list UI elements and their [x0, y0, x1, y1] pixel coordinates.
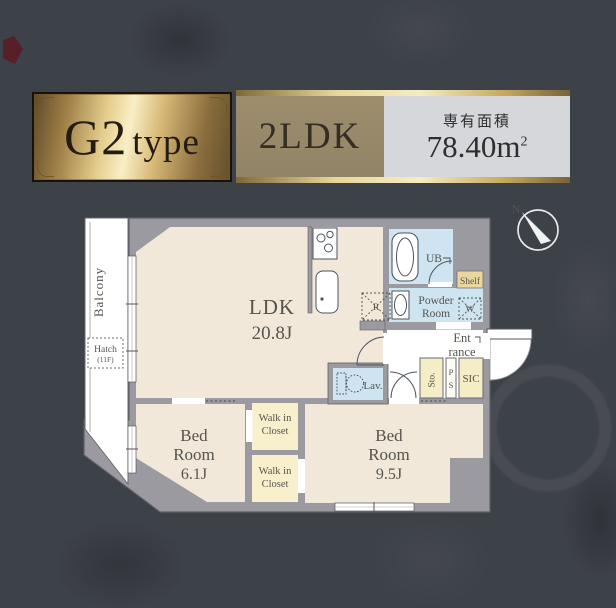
ps-letter-s: S	[449, 380, 454, 390]
compass: N	[512, 202, 558, 250]
bedroom1-name-line2: Room	[173, 445, 215, 464]
entrance-label-line1: Ent	[453, 331, 471, 345]
pipe-space	[446, 358, 456, 398]
powder-door-gap	[436, 322, 471, 330]
ub-label: UB	[426, 253, 442, 265]
ub-door-gap	[428, 282, 452, 287]
ps-letter-p: P	[449, 367, 454, 377]
balcony-label: Balcony	[91, 267, 106, 317]
wic1-label-line2: Closet	[262, 426, 289, 437]
entrance-door-swing	[490, 339, 531, 380]
storage-label: Sto.	[428, 372, 438, 387]
hatch-label: Hatch	[94, 345, 117, 355]
compass-north-label: N	[512, 202, 521, 216]
wic2-door-gap	[298, 459, 305, 493]
wic2-label-line2: Closet	[262, 479, 289, 490]
floor-plan: Balcony Hatch (11F)	[0, 0, 616, 608]
hatch-floor-label: (11F)	[97, 355, 114, 364]
lavatory-label: Lav.	[363, 380, 382, 392]
bedroom1-size: 6.1J	[181, 466, 207, 483]
bedroom2-size: 9.5J	[376, 466, 402, 483]
wic1-label-line1: Walk in	[259, 413, 292, 424]
fridge-label: R	[373, 303, 380, 313]
wic2-label-line1: Walk in	[259, 466, 292, 477]
compass-needle-icon	[522, 212, 551, 244]
bedroom1-door-gap	[172, 398, 205, 404]
washer-label: W	[466, 305, 475, 315]
page-background: G2 type 2LDK 専有面積 78.40m2 Balcony Hatch …	[0, 0, 616, 608]
entrance-label-line2: rance	[448, 345, 476, 359]
kitchen-sink-icon	[316, 271, 338, 313]
ldk-size: 20.8J	[252, 323, 293, 344]
bedroom2-name-line2: Room	[368, 445, 410, 464]
hall-wall-stub	[360, 321, 385, 330]
powder-label-line2: Room	[422, 308, 450, 320]
ldk-door-gap	[383, 333, 389, 364]
bedroom1-name-line1: Bed	[180, 426, 208, 445]
ldk-name: LDK	[249, 295, 295, 319]
wic1-door-gap	[246, 410, 253, 442]
powder-label-line1: Powder	[418, 295, 453, 307]
bedroom2-name-line1: Bed	[375, 426, 403, 445]
sic-label: SIC	[462, 373, 479, 385]
kitchen-wall-stub	[308, 227, 312, 313]
shelf-label: Shelf	[460, 276, 481, 287]
entrance-door-gap	[483, 333, 490, 359]
stove-icon	[313, 228, 337, 259]
entrance-door-leaf	[487, 329, 532, 339]
bedroom2-door-gap	[389, 398, 419, 404]
bathtub-icon	[392, 233, 418, 281]
vanity-sink-icon	[392, 291, 409, 319]
